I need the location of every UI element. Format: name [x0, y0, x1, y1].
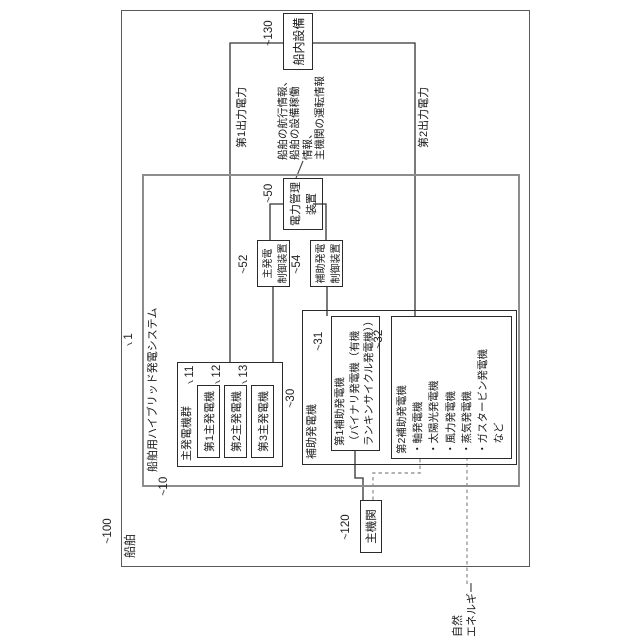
- power-management-line: 電力管理: [287, 182, 303, 226]
- ref-50: ~50: [263, 184, 275, 203]
- ref-120: ~120: [340, 514, 352, 540]
- ref-10: ~10: [158, 477, 170, 496]
- aux2-line: ・風力発電機: [443, 317, 459, 454]
- ref-squiggle: ~: [290, 266, 303, 275]
- main-generator-group-label: 主発電機群: [181, 406, 194, 461]
- aux-gen-control-line: 制御装置: [327, 244, 342, 284]
- ref-52: ~52: [238, 255, 250, 274]
- ref-31: ~31: [313, 332, 325, 351]
- main-gen-control-line: 制御装置: [274, 244, 289, 284]
- info-line: 情報、: [302, 76, 314, 160]
- aux2-line: ・軸発電機: [410, 317, 426, 454]
- ref-32: ~32: [373, 330, 385, 349]
- natural-energy-line: 自然: [451, 582, 465, 637]
- output-power-1-label: 第1出力電力: [236, 87, 249, 148]
- generator1-box: 第1主発電機: [197, 385, 220, 458]
- aux2-line: 第2補助発電機: [394, 317, 410, 454]
- ref-squiggle: ~: [262, 195, 275, 204]
- ref-100: ~100: [102, 518, 114, 544]
- natural-energy-label: 自然 エネルギー: [451, 582, 479, 637]
- aux2-box: 第2補助発電機 ・軸発電機 ・太陽光発電機 ・風力発電機 ・蒸気発電機 ・ガスタ…: [391, 316, 512, 459]
- aux2-line: ・太陽光発電機: [426, 317, 442, 454]
- ref-squiggle: ~: [284, 400, 297, 409]
- generator3-box: 第3主発電機: [251, 385, 274, 458]
- aux2-line: ・蒸気発電機: [459, 317, 475, 454]
- ref-11: ~11: [184, 366, 196, 384]
- ref-squiggle: ~: [339, 532, 352, 541]
- aux1-line: （バイナリ発電機（有機: [348, 317, 363, 446]
- main-gen-control-line: 主発電: [259, 244, 274, 284]
- ref-squiggle: ~: [372, 341, 385, 350]
- ref-1: ~1: [123, 333, 135, 346]
- ref-12: ~12: [211, 365, 223, 384]
- ref-squiggle: ~: [157, 488, 170, 497]
- ref-squiggle: ~: [262, 38, 275, 47]
- onboard-equipment-box: 船内設備: [283, 13, 313, 70]
- generator2-box: 第2主発電機: [224, 385, 247, 458]
- main-engine-box: 主機関: [360, 500, 382, 553]
- power-management-box: 電力管理 装置: [283, 178, 323, 230]
- ref-13: ~13: [238, 365, 250, 384]
- main-engine-label: 主機関: [363, 509, 379, 544]
- aux1-line: 第1補助発電機: [333, 317, 348, 446]
- generator2-label: 第2主発電機: [228, 391, 244, 452]
- system-title: 船舶用ハイブリッド発電システム: [147, 308, 160, 472]
- aux-generator-label: 補助発電機: [306, 404, 319, 459]
- aux-gen-control-box: 補助発電 制御装置: [310, 240, 343, 287]
- power-management-line: 装置: [303, 182, 319, 226]
- aux2-line: など: [491, 317, 507, 454]
- ref-30: ~30: [285, 389, 297, 408]
- ref-squiggle: ~: [312, 343, 325, 352]
- info-line: 船舶の航行情報、: [277, 76, 289, 160]
- diagram-stage: 船舶 ~100 船舶用ハイブリッド発電システム ~1 主発電機群 ~10 第1主…: [0, 0, 640, 640]
- generator3-label: 第3主発電機: [255, 391, 271, 452]
- ref-130: ~130: [263, 20, 275, 46]
- ref-squiggle: ~: [101, 536, 114, 545]
- aux-gen-control-line: 補助発電: [312, 244, 327, 284]
- generator1-label: 第1主発電機: [201, 391, 217, 452]
- patent-figure: 船舶 ~100 船舶用ハイブリッド発電システム ~1 主発電機群 ~10 第1主…: [0, 0, 640, 640]
- info-annotation: 船舶の航行情報、 船舶の設備稼働 情報、 主機関の運転情報: [277, 76, 326, 160]
- output-power-2-label: 第2出力電力: [418, 87, 431, 148]
- onboard-equipment-label: 船内設備: [290, 18, 307, 66]
- ref-54: ~54: [291, 255, 303, 274]
- ship-label: 船舶: [124, 534, 138, 558]
- natural-energy-line: エネルギー: [465, 582, 479, 637]
- main-gen-control-box: 主発電 制御装置: [257, 240, 290, 287]
- info-line: 主機関の運転情報: [314, 76, 326, 160]
- info-line: 船舶の設備稼働: [289, 76, 301, 160]
- ref-squiggle: ~: [237, 266, 250, 275]
- aux2-line: ・ガスタービン発電機: [475, 317, 491, 454]
